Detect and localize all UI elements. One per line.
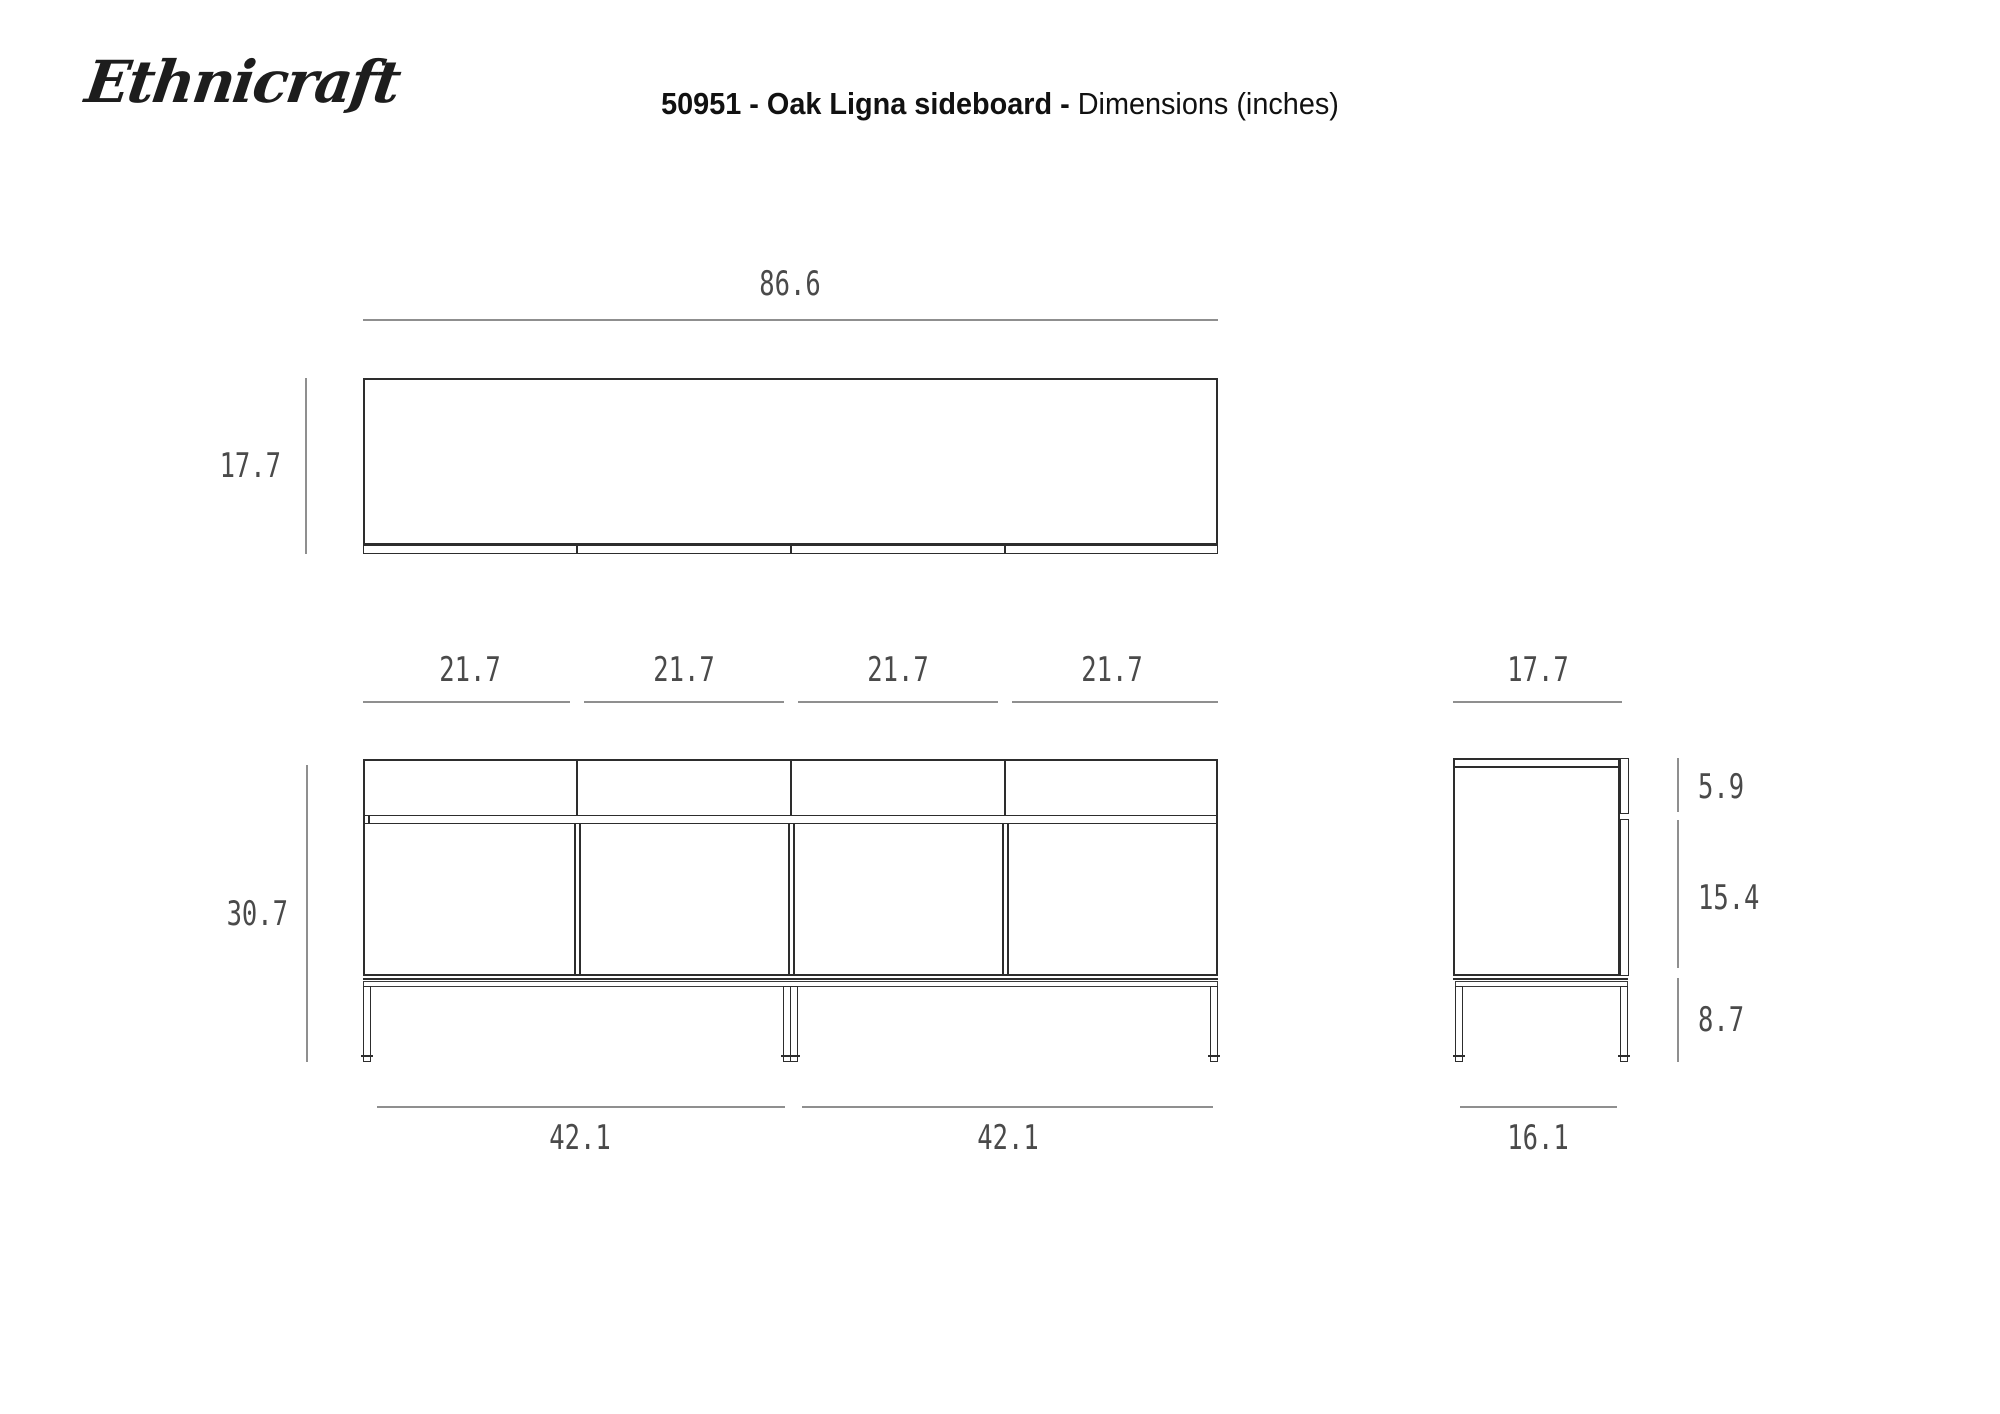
top-view-front-edge-divider [790, 545, 792, 554]
top-width-dim-label: 86.6 [753, 265, 828, 303]
leg-foot-line [1208, 1055, 1220, 1057]
front-leg-left [363, 986, 371, 1062]
side-depth-dim-label: 17.7 [1501, 651, 1576, 689]
side-depth-dim-line [1453, 701, 1622, 703]
front-base-dim-line [377, 1106, 785, 1108]
brand-logo: Ethnicraft [81, 48, 403, 116]
front-section-dim-label: 21.7 [1075, 651, 1150, 689]
front-section-dim-line [798, 701, 998, 703]
door-gap-line [574, 824, 576, 976]
leg-foot-line [1618, 1055, 1630, 1057]
top-view-outline [363, 378, 1218, 545]
front-section-dim-label: 21.7 [433, 651, 508, 689]
top-width-dim-line [363, 319, 1218, 321]
door-gap-line [788, 824, 790, 976]
front-bottom-panel-line [363, 978, 1218, 980]
page-title-subtitle: Dimensions (inches) [1078, 86, 1339, 121]
side-base-dim-line [1460, 1106, 1617, 1108]
front-base-dim-line [802, 1106, 1213, 1108]
leg-foot-line [781, 1055, 800, 1057]
side-bottom-panel-line [1453, 978, 1628, 980]
side-leg-dim-line [1677, 978, 1679, 1062]
side-view-outline [1453, 758, 1620, 976]
door-gap-line [579, 824, 581, 976]
side-base-dim-label: 16.1 [1501, 1119, 1576, 1157]
side-base-rail [1455, 981, 1628, 987]
side-door-front [1620, 819, 1629, 976]
drawer-divider [576, 759, 578, 816]
drawer-divider [1004, 759, 1006, 816]
dimension-sheet: Ethnicraft 50951 - Oak Ligna sideboard -… [0, 0, 2000, 1414]
side-door-dim-label: 15.4 [1698, 879, 1788, 917]
front-leg-right [1210, 986, 1218, 1062]
front-leg-middle [790, 986, 798, 1062]
leg-foot-line [361, 1055, 373, 1057]
front-section-dim-label: 21.7 [647, 651, 722, 689]
door-gap-line [793, 824, 795, 976]
top-depth-dim-label: 17.7 [206, 447, 281, 485]
side-door-dim-line [1677, 820, 1679, 968]
page-title-product: 50951 - Oak Ligna sideboard - [661, 86, 1070, 121]
front-base-dim-label: 42.1 [543, 1119, 618, 1157]
front-section-dim-line [584, 701, 784, 703]
top-view-front-edge-divider [1004, 545, 1006, 554]
front-base-dim-label: 42.1 [971, 1119, 1046, 1157]
drawer-shelf-band [363, 815, 1218, 824]
side-drawer-dim-label: 5.9 [1698, 768, 1788, 806]
front-section-dim-line [1012, 701, 1218, 703]
page-title: 50951 - Oak Ligna sideboard - Dimensions… [661, 86, 1339, 122]
side-drawer-front [1620, 758, 1629, 814]
drawer-shelf-notch [368, 815, 370, 824]
top-view-front-edge-divider [576, 545, 578, 554]
side-top-panel-line [1453, 766, 1620, 768]
front-height-dim-label: 30.7 [213, 895, 288, 933]
leg-foot-line [1453, 1055, 1465, 1057]
front-height-dim-line [306, 765, 308, 1062]
side-drawer-dim-line [1677, 758, 1679, 812]
door-gap-line [1007, 824, 1009, 976]
side-leg-dim-label: 8.7 [1698, 1001, 1788, 1039]
front-section-dim-label: 21.7 [861, 651, 936, 689]
side-leg-right [1620, 986, 1628, 1062]
drawer-divider [790, 759, 792, 816]
side-leg-left [1455, 986, 1463, 1062]
door-gap-line [1002, 824, 1004, 976]
top-depth-dim-line [305, 378, 307, 554]
front-section-dim-line [363, 701, 570, 703]
